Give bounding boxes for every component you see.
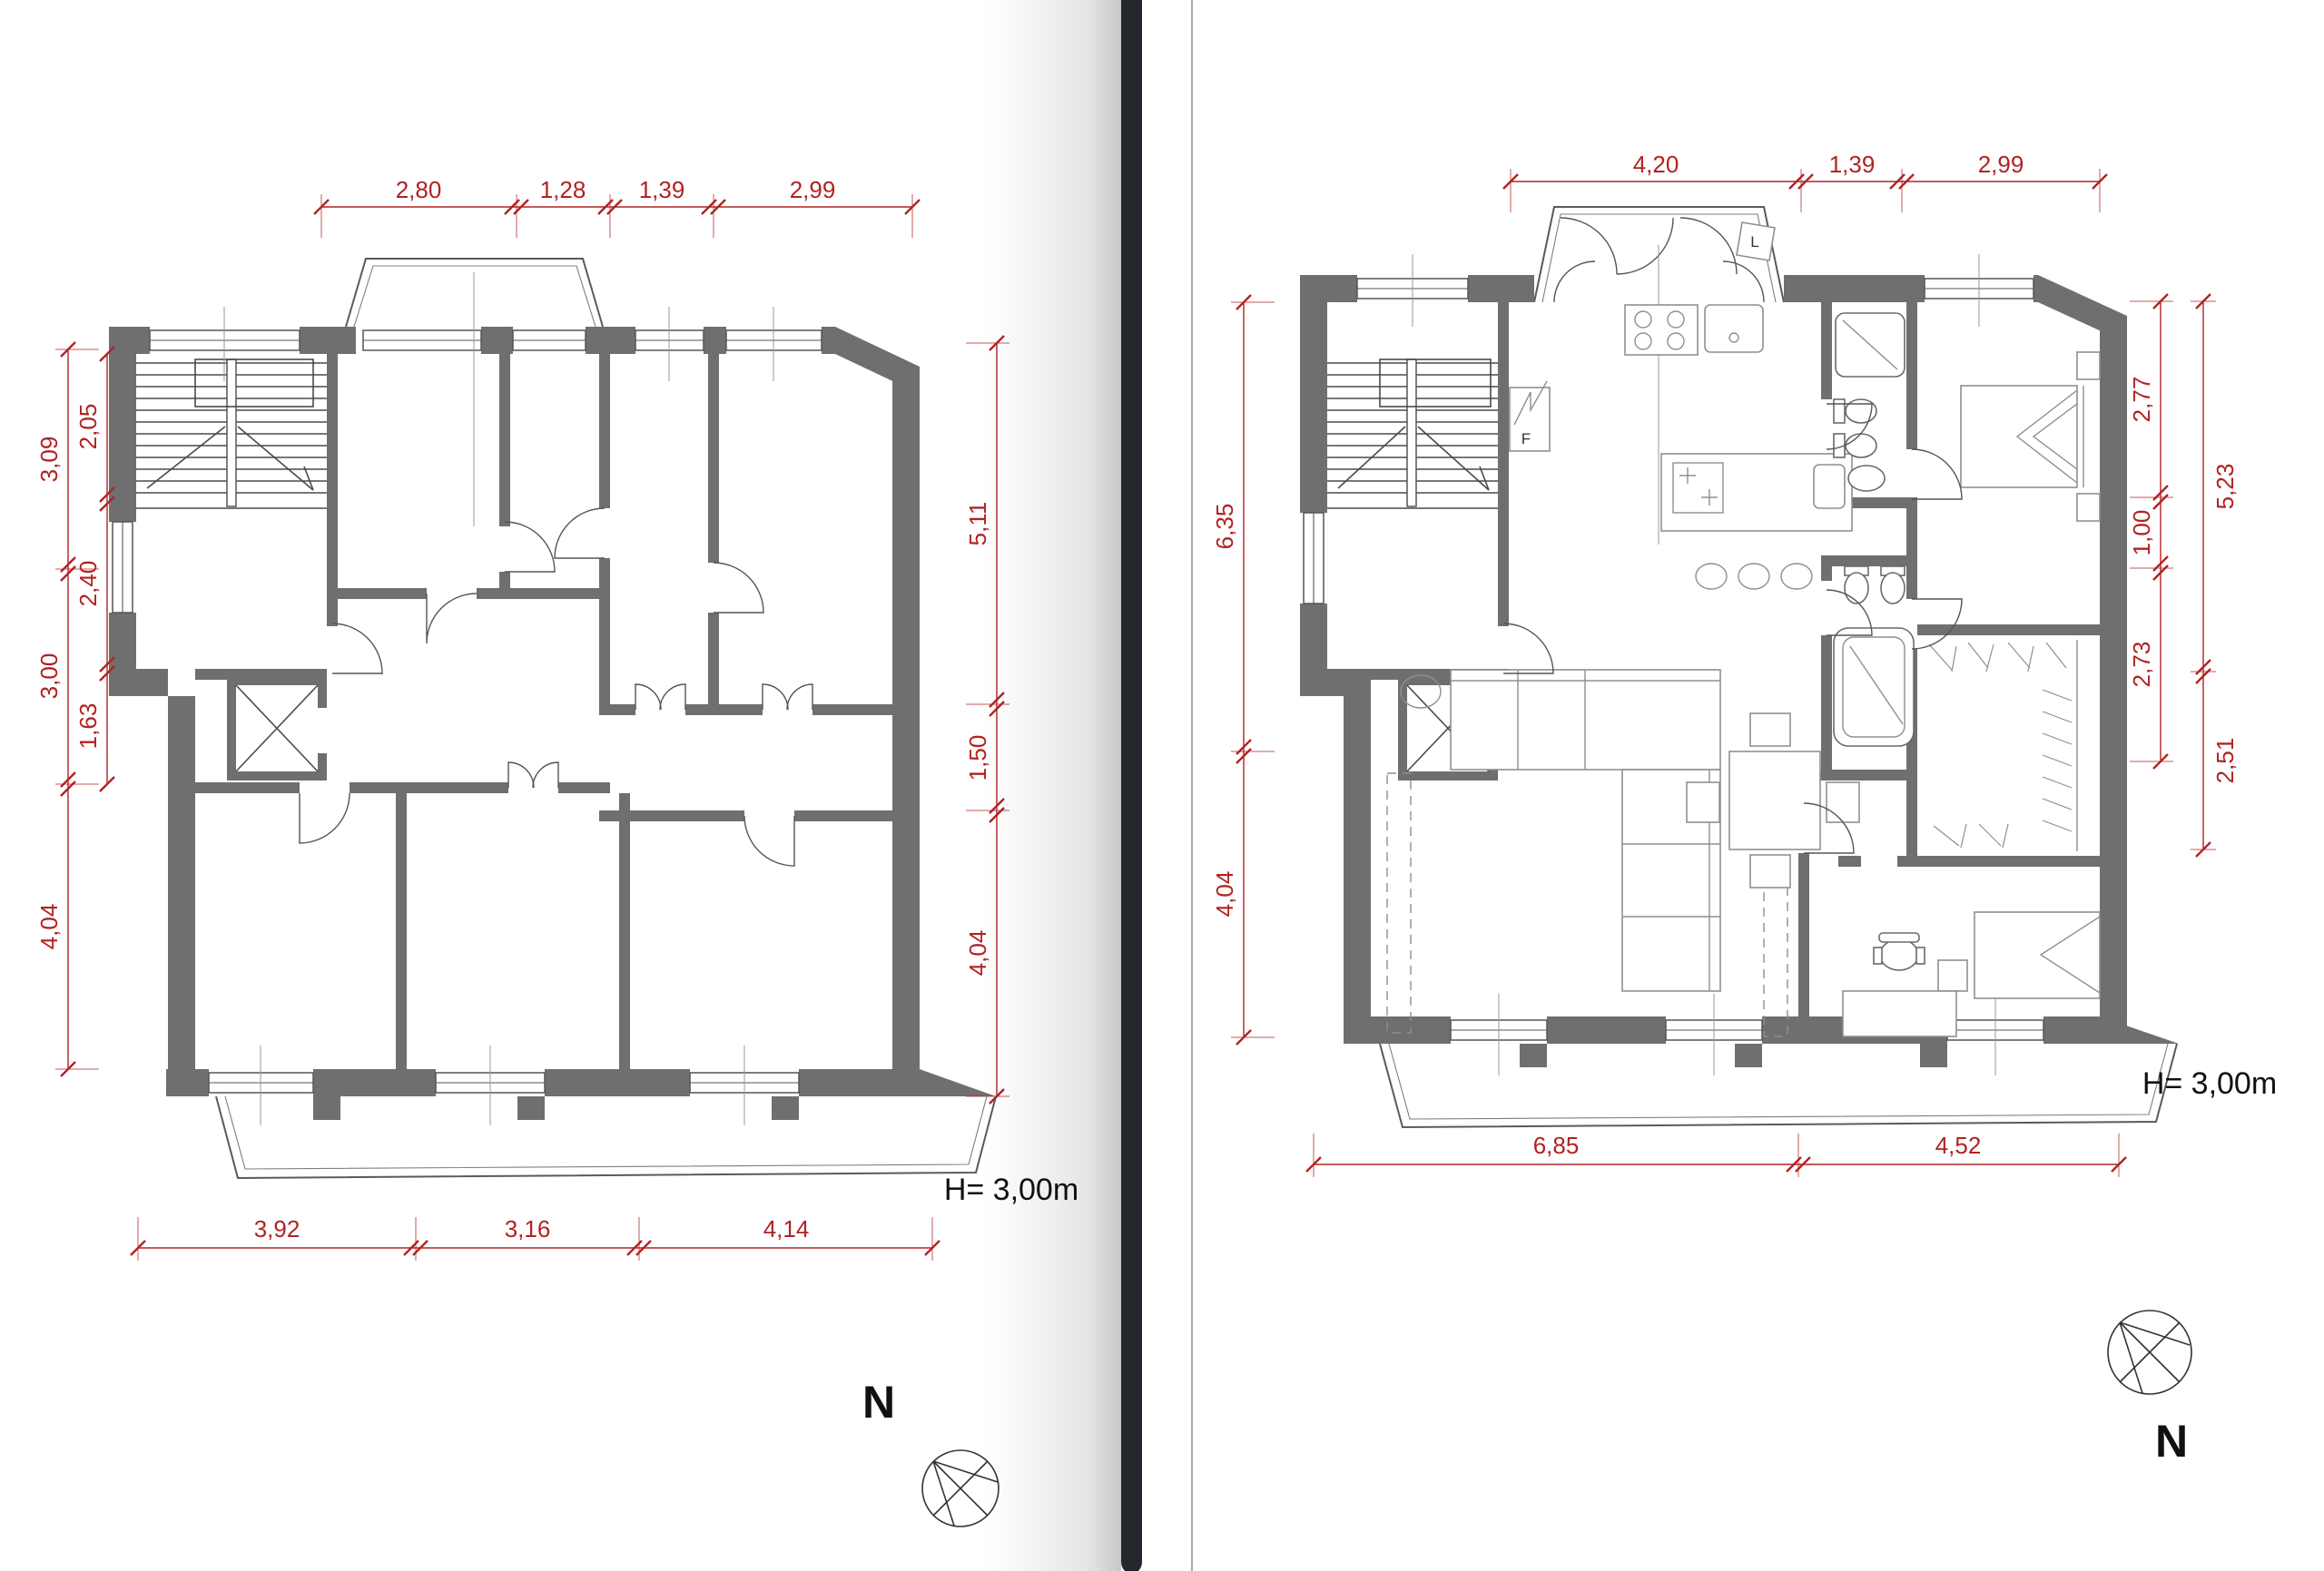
dim-label: 4,14 bbox=[763, 1215, 810, 1242]
dim-label: 2,99 bbox=[790, 176, 836, 203]
dim-label: 2,80 bbox=[396, 176, 442, 203]
page-background bbox=[0, 0, 2324, 1571]
dim-label: 2,05 bbox=[74, 404, 102, 450]
dim-label: 5,23 bbox=[2211, 464, 2239, 510]
dim-label: 1,00 bbox=[2128, 510, 2155, 556]
dim-label: 4,04 bbox=[1211, 871, 1238, 918]
dim-label: 1,39 bbox=[1829, 151, 1876, 178]
dim-label: 2,73 bbox=[2128, 642, 2155, 688]
ceiling-height-label: H= 3,00m bbox=[2142, 1066, 2277, 1101]
dim-label: 1,39 bbox=[639, 176, 685, 203]
dim-label: 3,00 bbox=[35, 653, 63, 700]
dim-label: 2,77 bbox=[2128, 377, 2155, 423]
dim-label: 4,52 bbox=[1935, 1132, 1982, 1159]
bay-cabinet-label: L bbox=[1750, 233, 1758, 250]
fridge-label: F bbox=[1521, 430, 1531, 447]
dim-label: 2,99 bbox=[1978, 151, 2024, 178]
dim-label: 6,35 bbox=[1211, 504, 1238, 550]
dim-label: 3,16 bbox=[505, 1215, 551, 1242]
north-label: N bbox=[862, 1377, 895, 1428]
dim-label: 3,09 bbox=[35, 437, 63, 483]
divider-handle-bar[interactable] bbox=[1121, 0, 1142, 1571]
dim-label: 6,85 bbox=[1533, 1132, 1580, 1159]
page-curl-shadow bbox=[985, 0, 1121, 1571]
dim-label: 1,63 bbox=[74, 703, 102, 750]
dim-label: 4,04 bbox=[35, 904, 63, 950]
north-label: N bbox=[2155, 1416, 2188, 1467]
dim-label: 3,92 bbox=[254, 1215, 300, 1242]
floor-plan-comparison-page: 2,80 1,28 1,39 2,99 3,09 3,00 4,04 2,0 bbox=[0, 0, 2324, 1571]
dim-label: 1,28 bbox=[540, 176, 586, 203]
dim-label: 2,51 bbox=[2211, 738, 2239, 784]
dim-label: 4,20 bbox=[1633, 151, 1679, 178]
dim-label: 2,40 bbox=[74, 561, 102, 607]
